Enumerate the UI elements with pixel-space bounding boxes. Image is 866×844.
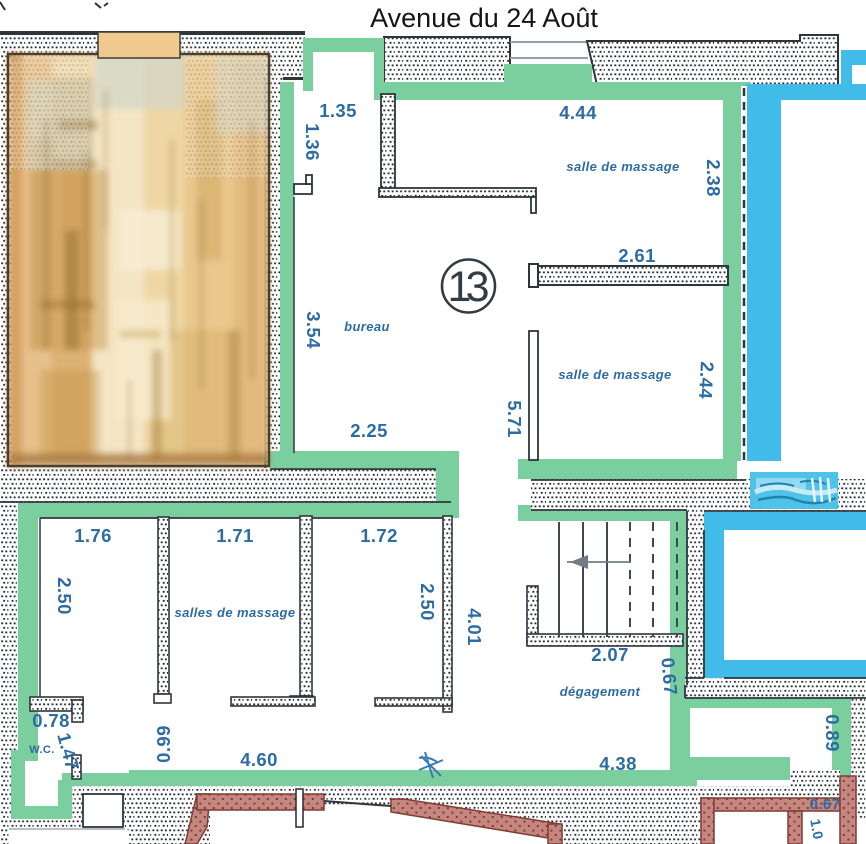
svg-text:0.99: 0.99 xyxy=(153,725,174,763)
svg-text:W.C.: W.C. xyxy=(29,744,54,756)
svg-text:2.38: 2.38 xyxy=(703,159,724,197)
svg-text:salle de massage: salle de massage xyxy=(566,159,679,174)
svg-text:2.44: 2.44 xyxy=(695,361,718,400)
svg-text:2.07: 2.07 xyxy=(591,644,629,665)
svg-text:1.76: 1.76 xyxy=(74,525,112,546)
svg-text:salles de massage: salles de massage xyxy=(175,605,296,620)
svg-text:0.78: 0.78 xyxy=(32,710,70,731)
svg-text:Avenue du 24 Août: Avenue du 24 Août xyxy=(370,3,598,33)
svg-text:0.67: 0.67 xyxy=(810,796,841,813)
svg-text:13: 13 xyxy=(448,263,490,311)
svg-text:1.35: 1.35 xyxy=(319,100,357,121)
svg-text:1.72: 1.72 xyxy=(360,525,398,546)
svg-text:0.89: 0.89 xyxy=(822,714,843,752)
svg-text:dégagement: dégagement xyxy=(560,684,641,699)
svg-text:2.50: 2.50 xyxy=(54,577,75,615)
svg-text:5.71: 5.71 xyxy=(504,400,525,438)
svg-text:1.71: 1.71 xyxy=(216,525,254,546)
svg-text:2.61: 2.61 xyxy=(618,245,656,266)
svg-text:4.60: 4.60 xyxy=(240,749,278,770)
svg-text:1.36: 1.36 xyxy=(302,123,323,161)
svg-text:2.50: 2.50 xyxy=(417,583,438,621)
svg-text:bureau: bureau xyxy=(344,319,390,334)
svg-text:2.25: 2.25 xyxy=(350,420,388,441)
svg-text:salle de massage: salle de massage xyxy=(558,367,671,382)
svg-text:4.44: 4.44 xyxy=(559,102,597,123)
svg-text:4.38: 4.38 xyxy=(599,753,637,774)
svg-text:4.01: 4.01 xyxy=(464,608,485,646)
svg-text:3.54: 3.54 xyxy=(303,311,324,349)
svg-text:0.67: 0.67 xyxy=(657,657,681,696)
